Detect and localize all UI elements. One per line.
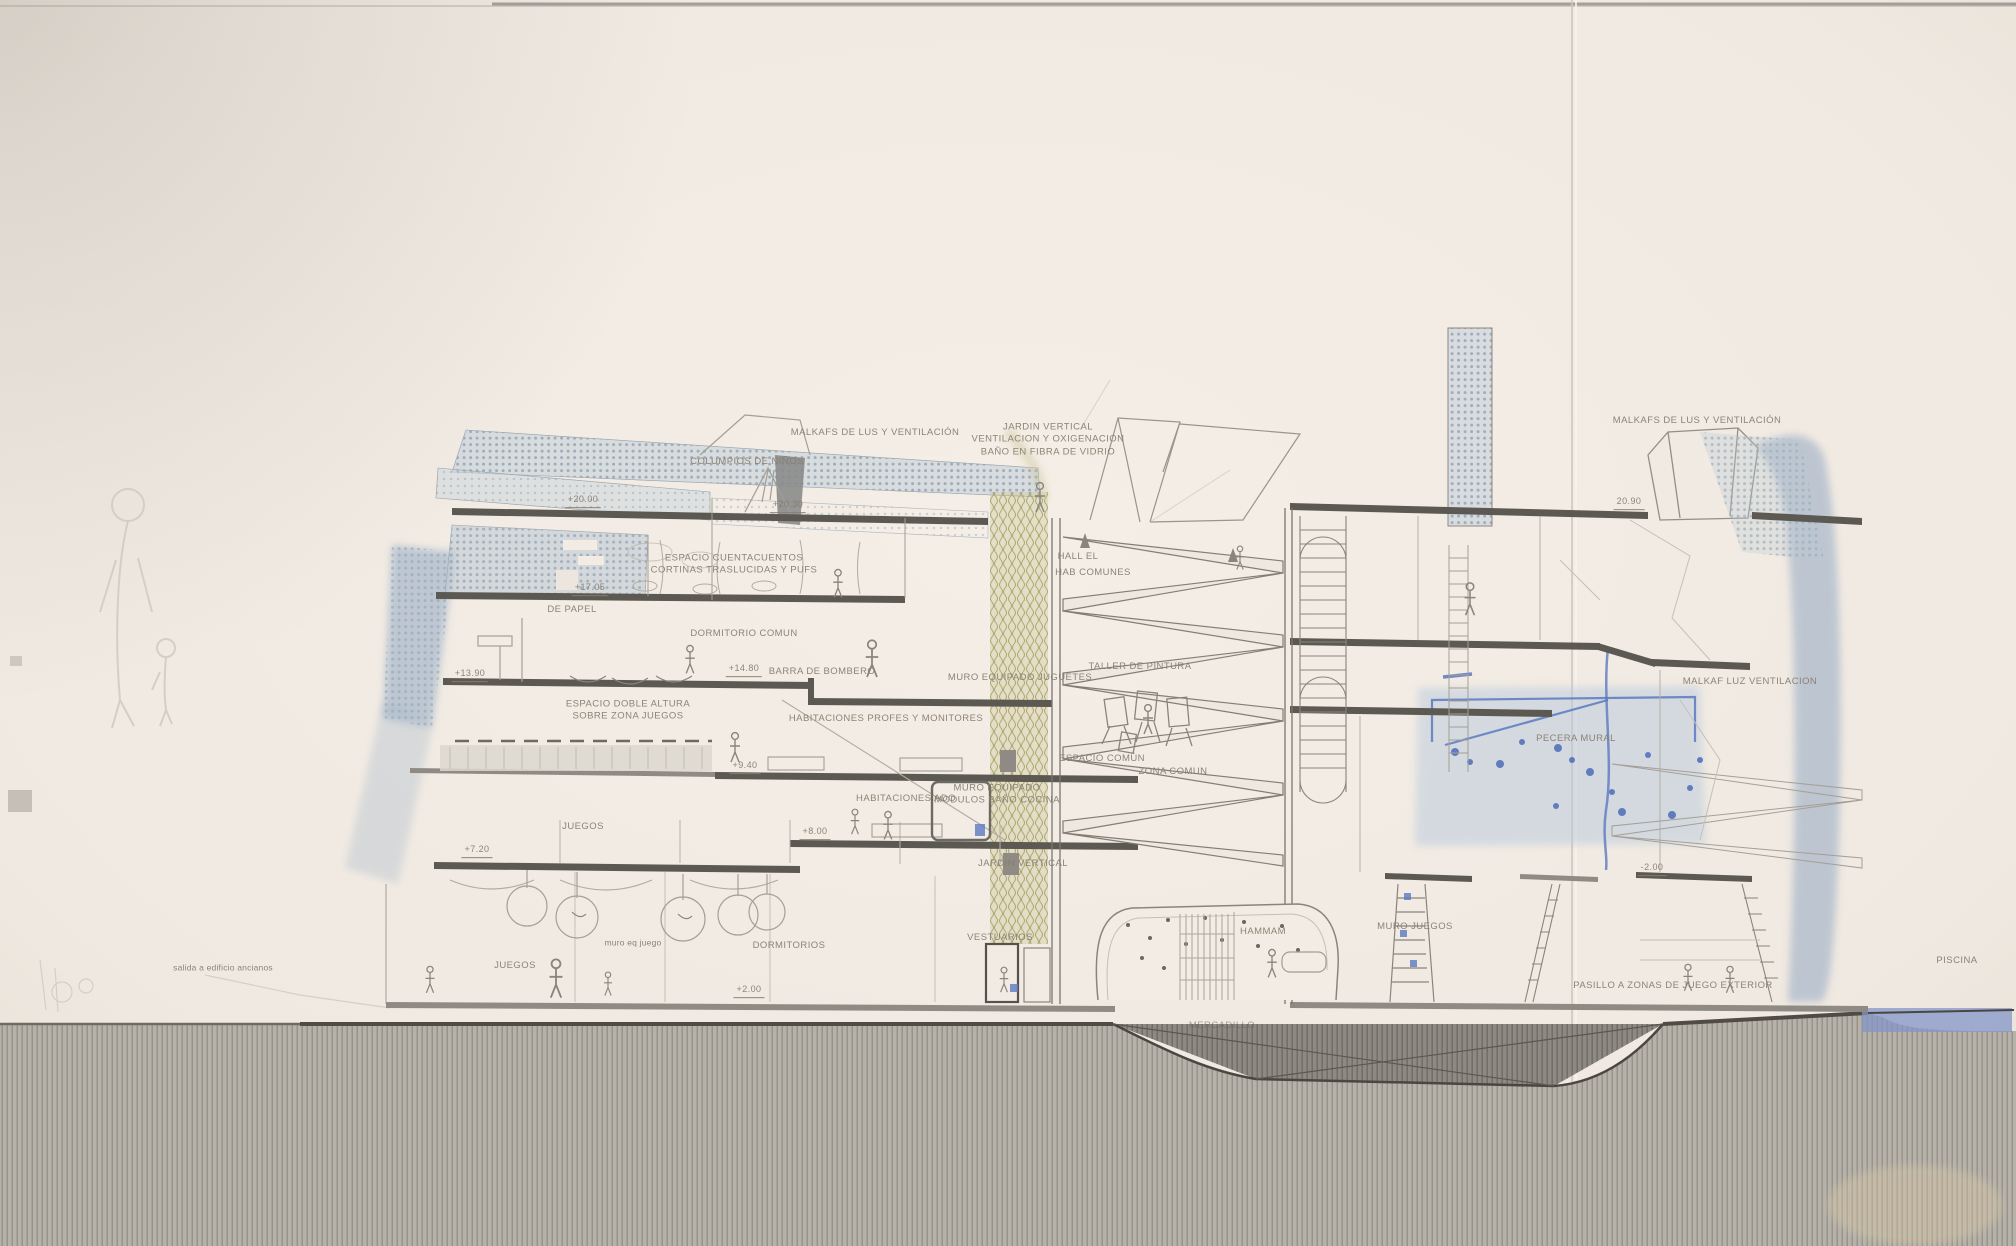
ground-plane <box>0 1008 2016 1246</box>
doble-altura-band <box>440 741 712 771</box>
photographed-section-drawing: MALKAFS DE LUS Y VENTILACIÓNCOLUMPIOS DE… <box>0 0 2016 1246</box>
hatched-tower <box>1448 328 1492 526</box>
hammam-dome <box>1096 904 1338 1000</box>
sand-patch <box>1827 1165 2003 1245</box>
section-drawing-canvas <box>0 0 2016 1246</box>
